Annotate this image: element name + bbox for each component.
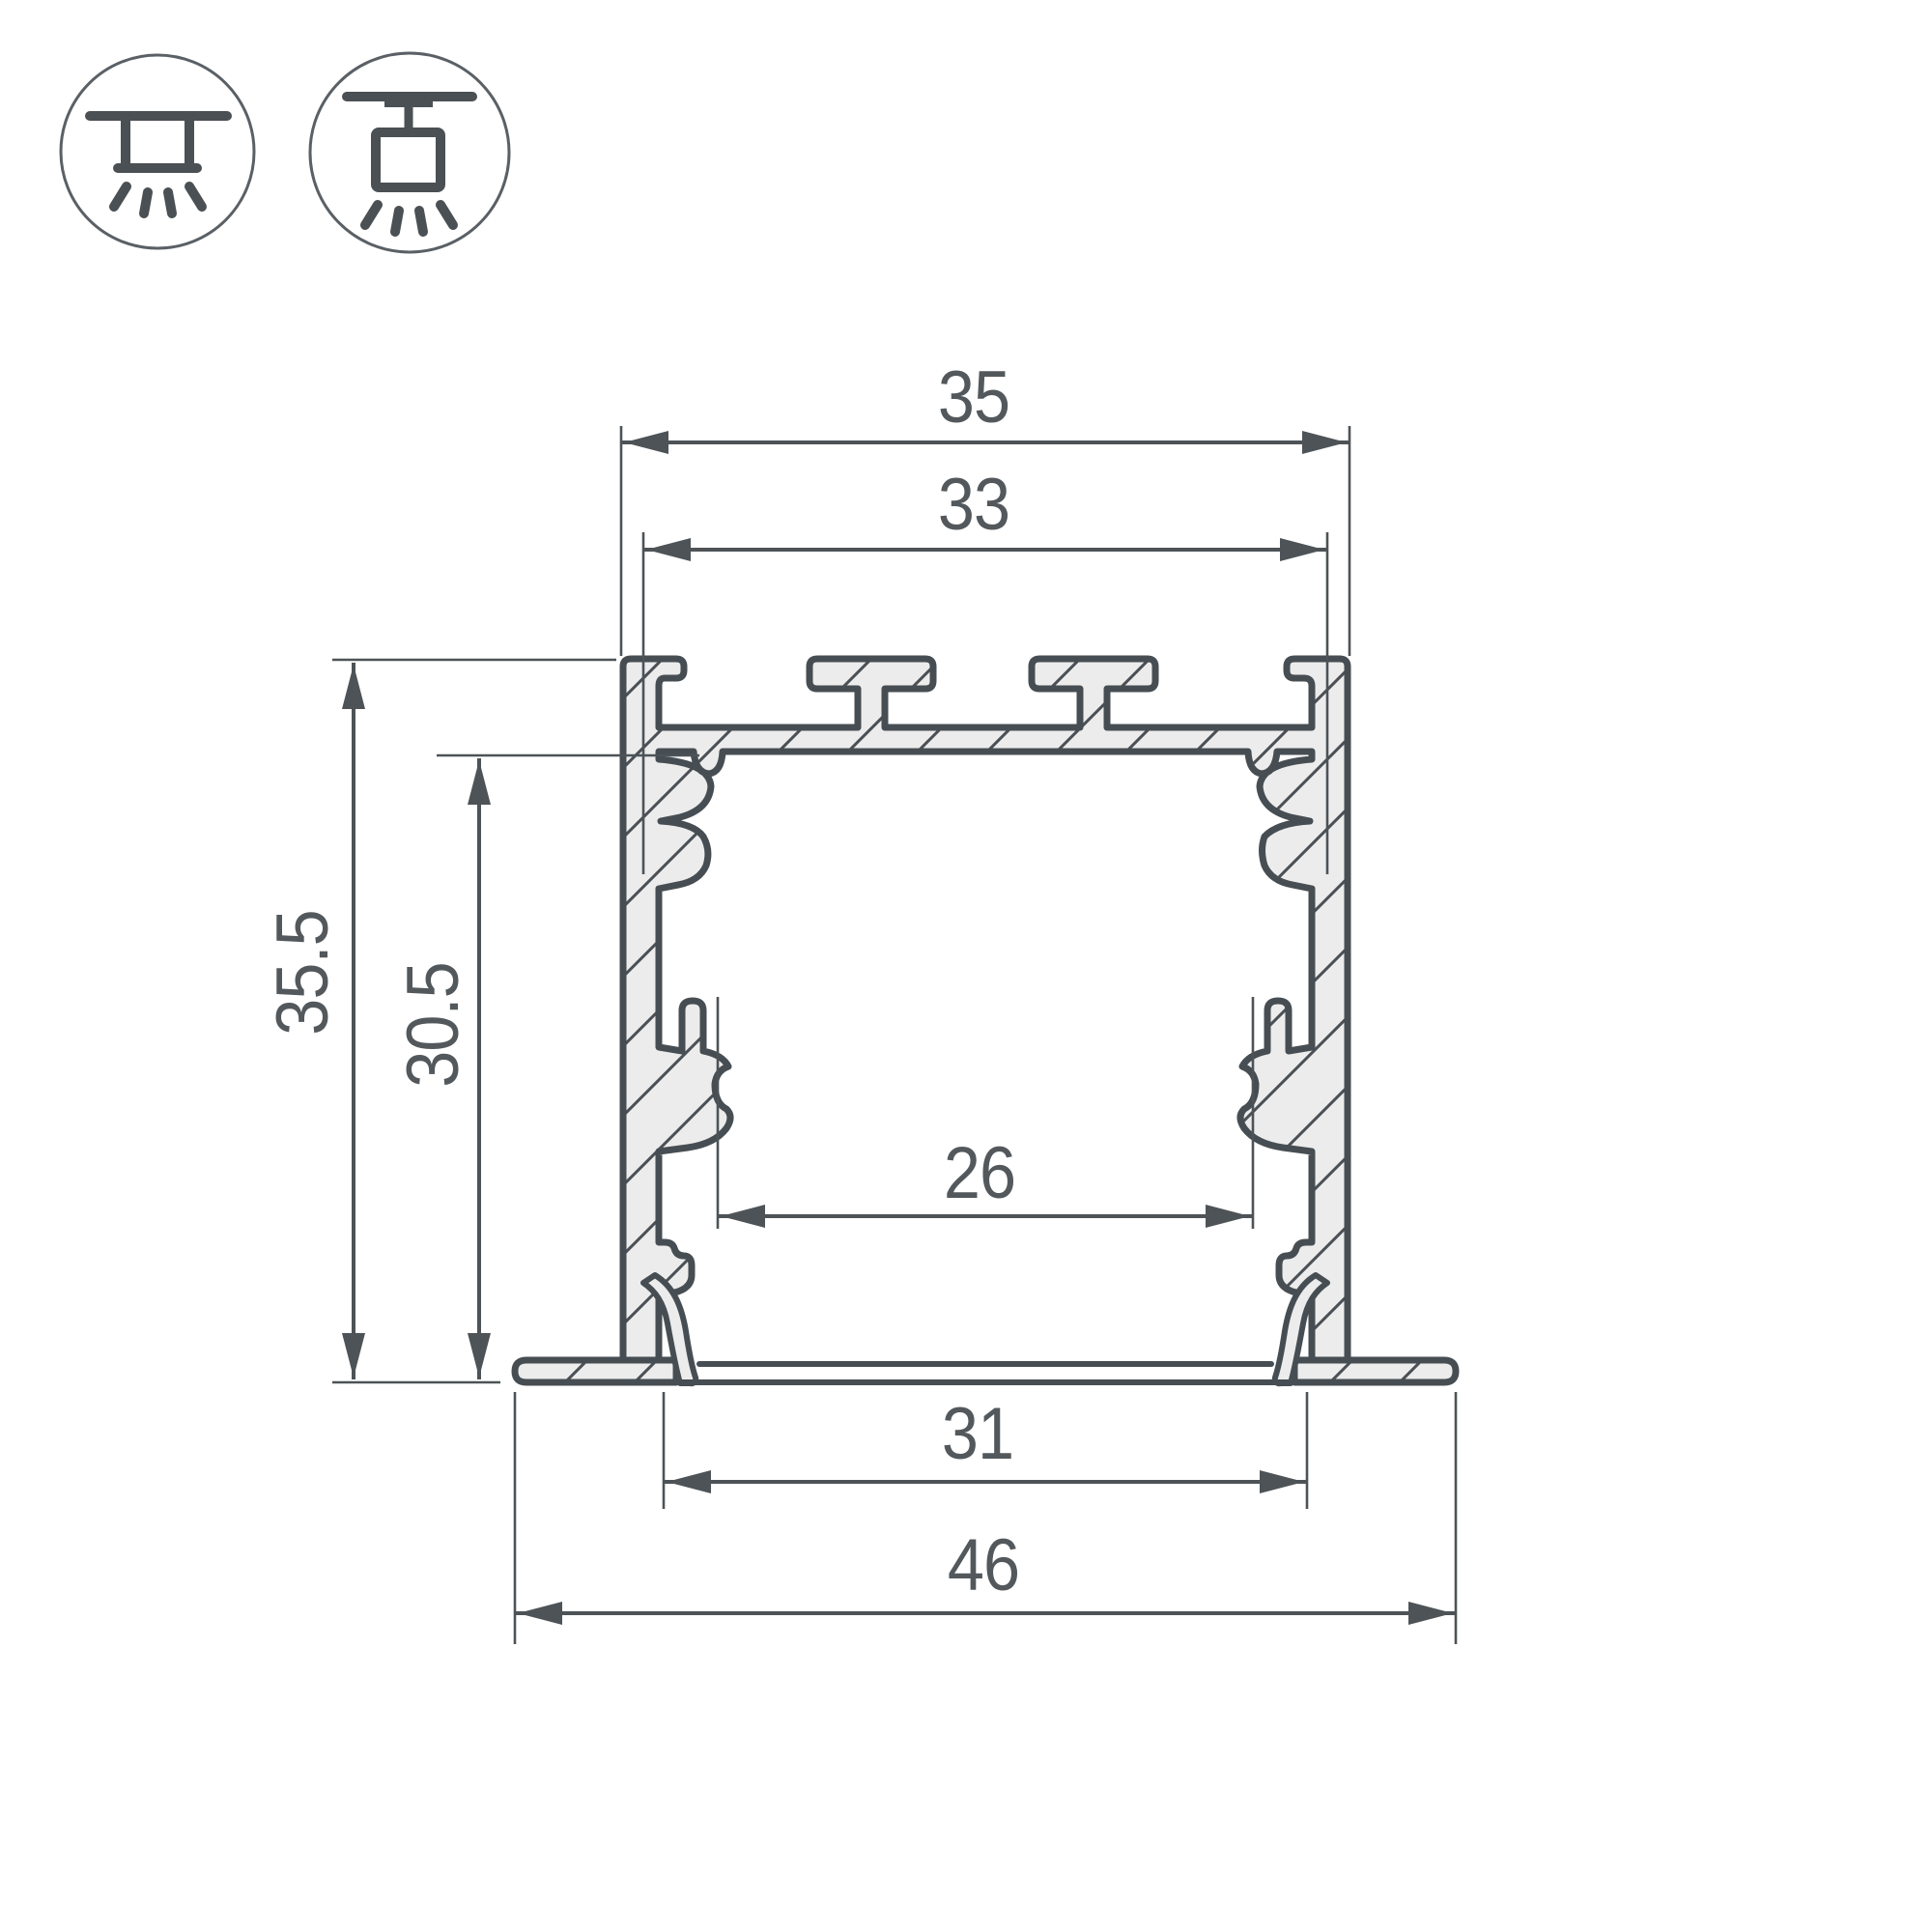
dim-overall-width-label: 46 xyxy=(948,1525,1019,1606)
drawing-page: 35 33 35.5 30.5 26 xyxy=(0,0,1932,1932)
dim-top-inner-width-label: 33 xyxy=(938,465,1009,546)
surface-mounting-icon xyxy=(310,53,509,252)
dim-bottom-inner-width-label: 31 xyxy=(942,1394,1013,1475)
flange-tab-left xyxy=(515,1360,676,1382)
dim-inner-height-label: 30.5 xyxy=(393,962,474,1087)
dim-top-width-label: 35 xyxy=(938,357,1009,439)
recessed-mounting-icon xyxy=(61,55,254,248)
profile-drawing: 35 33 35.5 30.5 26 xyxy=(0,0,1932,1932)
flange-tab-right xyxy=(1294,1360,1456,1382)
dim-inner-width-label: 26 xyxy=(944,1133,1015,1214)
dim-overall-height-label: 35.5 xyxy=(263,910,344,1035)
